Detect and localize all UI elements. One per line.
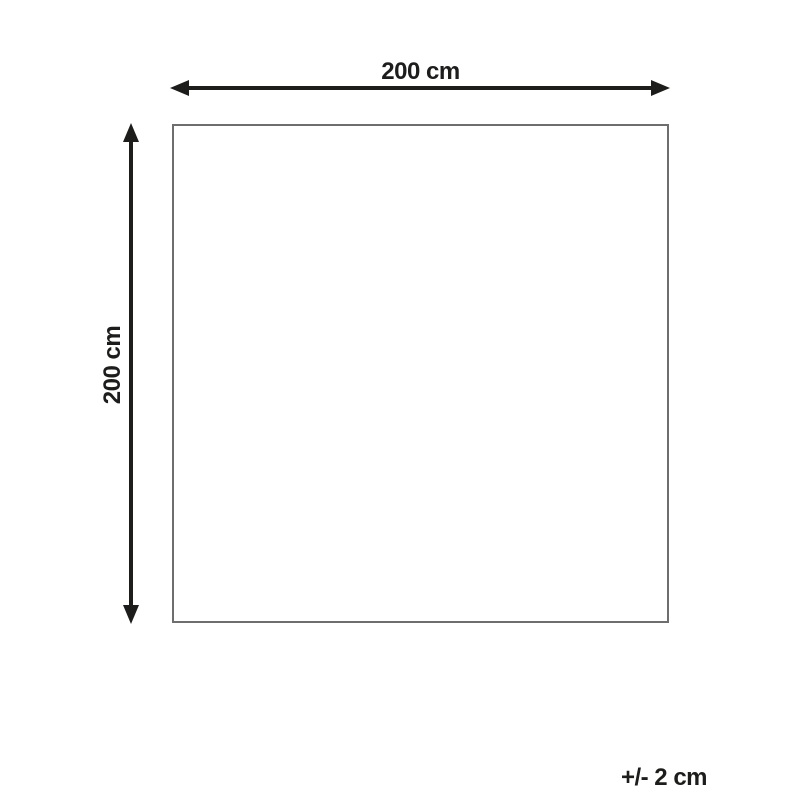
height-arrow-bottom-head (123, 605, 139, 624)
tolerance-label: +/- 2 cm (621, 766, 707, 790)
dimension-diagram: 200 cm 200 cm +/- 2 cm (0, 0, 800, 800)
rug-outline (172, 124, 669, 623)
height-dimension-label: 200 cm (101, 326, 125, 404)
height-arrow-top-head (123, 123, 139, 142)
width-dimension-label: 200 cm (172, 60, 669, 84)
